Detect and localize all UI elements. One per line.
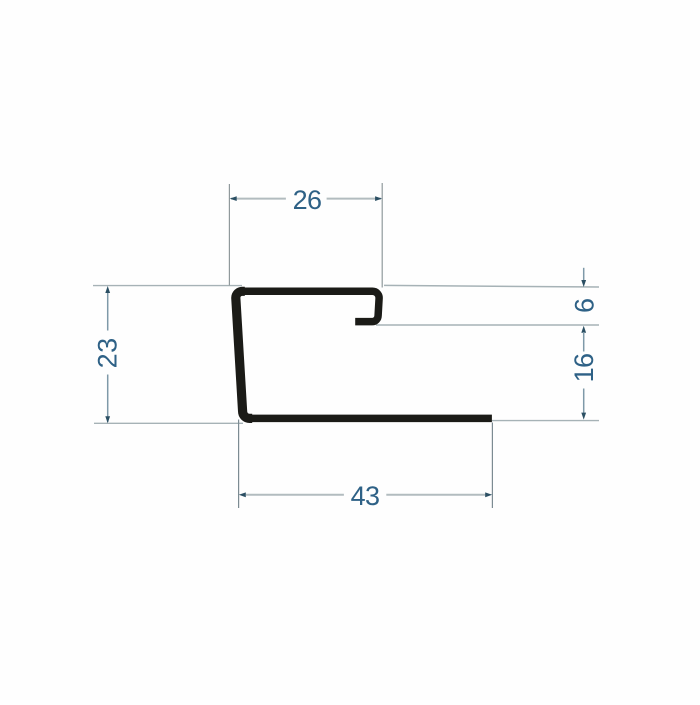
svg-text:16: 16 bbox=[569, 354, 599, 383]
svg-text:6: 6 bbox=[569, 298, 599, 313]
svg-text:23: 23 bbox=[93, 337, 123, 368]
svg-text:26: 26 bbox=[293, 185, 322, 215]
svg-text:43: 43 bbox=[351, 481, 380, 511]
